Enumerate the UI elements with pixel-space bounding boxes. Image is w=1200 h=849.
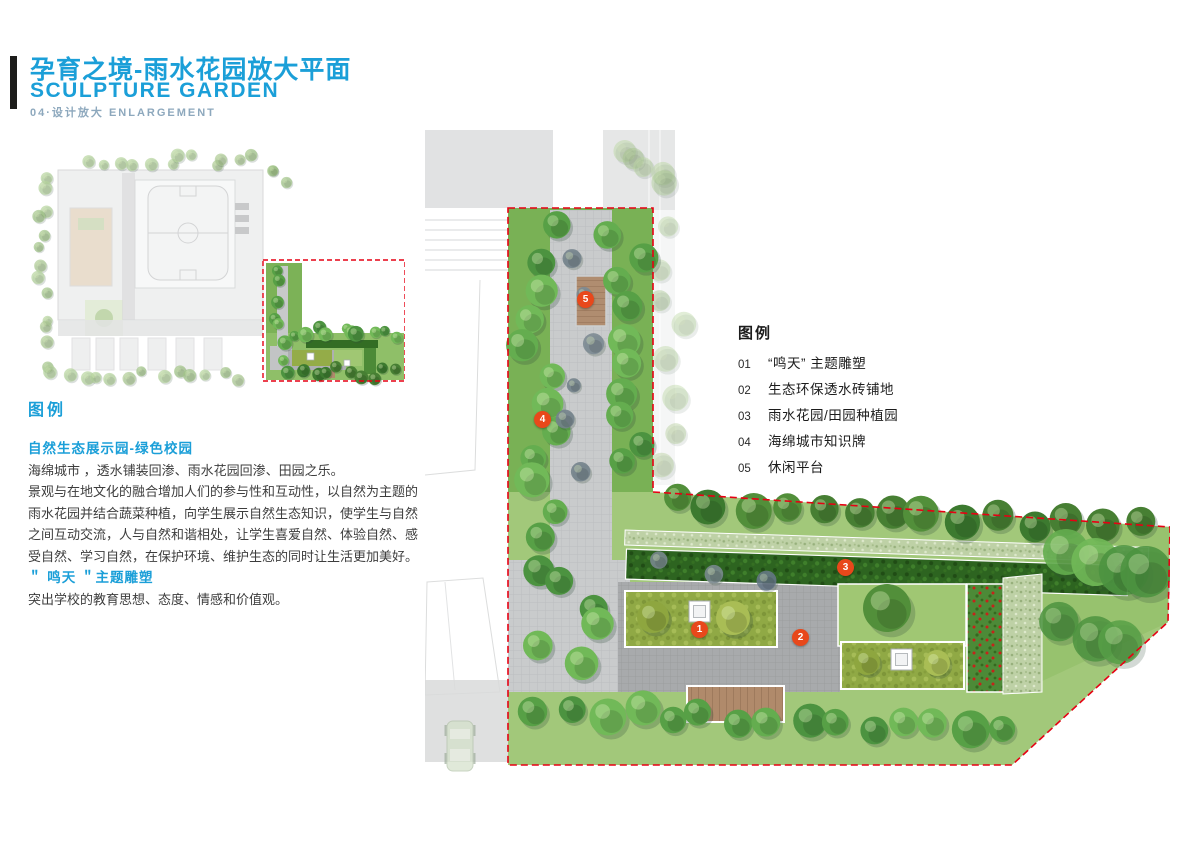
garden-surfaces [508,208,1170,766]
plan-marker-1: 1 [691,621,708,638]
vegetable-garden-strip [967,584,1004,692]
page-title-en: SCULPTURE GARDEN [30,79,279,103]
paragraph-1: 海绵城市 ，透水铺装回渗、雨水花园回渗、田园之乐。 [28,460,422,482]
plan-marker-3: 3 [837,559,854,576]
sub-section-title: ＂ 鸣天 ＂主题雕塑 [28,567,422,589]
faded-car [445,721,476,771]
legend-item-01: 01 “鸣天” 主题雕塑 [738,352,1018,378]
left-legend-heading: 图例 [28,396,66,420]
plan-marker-5: 5 [577,291,594,308]
plan-marker-4: 4 [534,411,551,428]
section-title: 自然生态展示园-绿色校园 [28,438,422,460]
page-subtitle: 04·设计放大 ENLARGEMENT [30,104,216,120]
paragraph-3: 突出学校的教育思想、态度、情感和价值观。 [28,589,422,611]
legend-item-03: 03 雨水花园/田园种植园 [738,404,1018,430]
legend-item-02: 02 生态环保透水砖铺地 [738,378,1018,404]
design-board-page: 孕育之境-雨水花园放大平面 SCULPTURE GARDEN 04·设计放大 E… [0,0,1200,849]
legend-item-05: 05 休闲平台 [738,456,1018,482]
sculpture-frame-2 [891,649,912,670]
plan-marker-2: 2 [792,629,809,646]
site-overview-map [30,148,405,390]
plan-legend: 图例 01 “鸣天” 主题雕塑 02 生态环保透水砖铺地 03 雨水花园/田园种… [738,322,1018,482]
sculpture-frame-1 [689,601,710,622]
legend-item-04: 04 海绵城市知识牌 [738,430,1018,456]
campus-faded-plan [31,149,293,388]
highlighted-garden-area [263,260,405,386]
paragraph-2: 景观与在地文化的融合增加人们的参与性和互动性，以自然为主题的雨水花园并结合蔬菜种… [28,481,422,567]
plan-legend-heading: 图例 [738,322,1018,343]
title-accent-bar [10,56,17,109]
description-block: 自然生态展示园-绿色校园 海绵城市 ，透水铺装回渗、雨水花园回渗、田园之乐。 景… [28,438,422,610]
